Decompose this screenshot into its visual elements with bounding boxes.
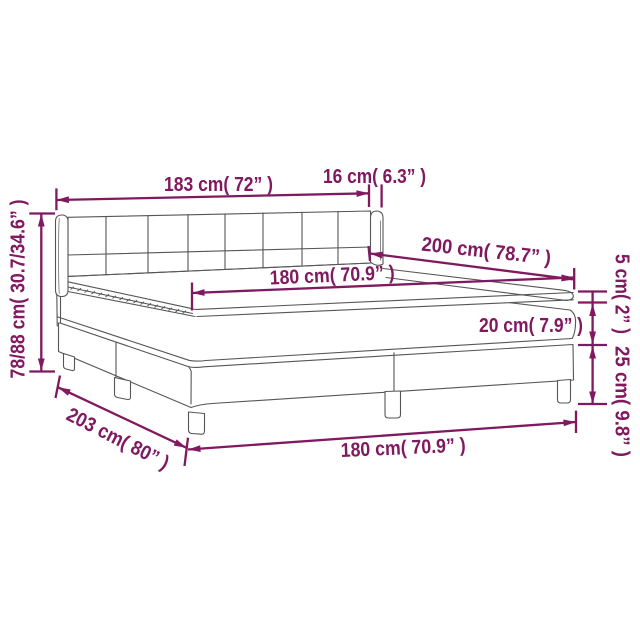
svg-text:5 cm( 2” ): 5 cm( 2” ): [611, 254, 633, 334]
svg-text:16 cm( 6.3” ): 16 cm( 6.3” ): [323, 166, 426, 188]
svg-text:25 cm( 9.8” ): 25 cm( 9.8” ): [611, 346, 633, 457]
svg-text:78/88 cm( 30.7/34.6” ): 78/88 cm( 30.7/34.6” ): [8, 200, 30, 379]
svg-text:183 cm( 72” ): 183 cm( 72” ): [164, 174, 273, 196]
svg-text:20 cm( 7.9” ): 20 cm( 7.9” ): [479, 315, 583, 337]
